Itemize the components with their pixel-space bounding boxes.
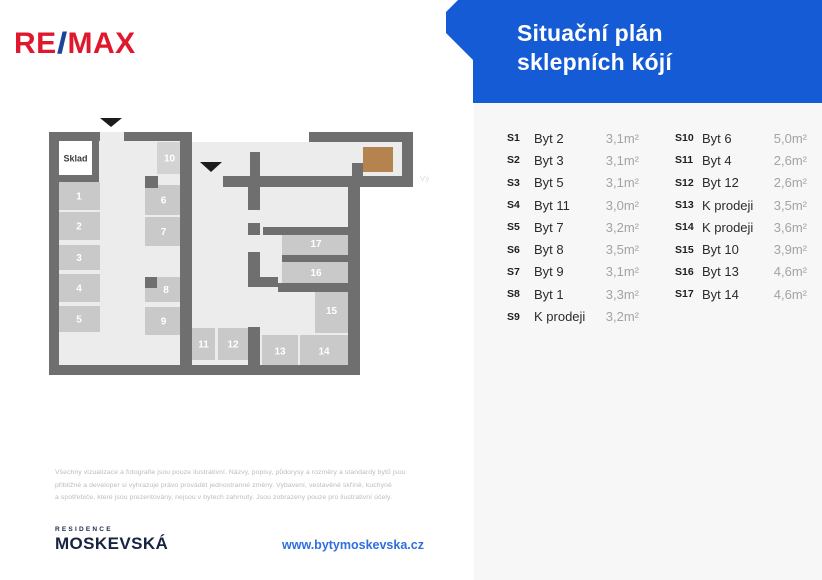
wall-center-vertical	[180, 132, 192, 375]
unit-assignment: Byt 7	[534, 220, 564, 235]
wall-above-cell17	[263, 227, 350, 235]
disclaimer-line1: Všechny vizualizace a fotografie jsou po…	[55, 467, 406, 480]
cell-label-11: 11	[198, 340, 209, 351]
cell-label-3: 3	[76, 253, 82, 264]
unit-assignment: Byt 2	[534, 131, 564, 146]
unit-area: 5,0m²	[774, 131, 807, 146]
unit-code: S3	[507, 177, 534, 189]
cell-label-9: 9	[161, 317, 167, 328]
column-pillar-1	[145, 176, 158, 188]
table-row: S11Byt 42,6m²	[675, 149, 807, 171]
unit-code: S7	[507, 266, 534, 278]
unit-assignment: K prodeji	[702, 198, 753, 213]
disclaimer-line2: přibližné a developer si vyhrazuje právo…	[55, 480, 406, 493]
unit-area: 2,6m²	[774, 153, 807, 168]
disclaimer-line3: a spotřebiče, které jsou prezentovány, n…	[55, 492, 406, 505]
table-row: S3Byt 53,1m²	[507, 172, 639, 194]
units-table-col2: S10Byt 65,0m² S11Byt 42,6m² S12Byt 122,6…	[675, 127, 807, 305]
cell-label-14: 14	[318, 347, 330, 358]
disclaimer: Všechny vizualizace a fotografie jsou po…	[55, 467, 406, 505]
unit-assignment: Byt 1	[534, 287, 564, 302]
unit-area: 3,9m²	[774, 242, 807, 257]
wall-between-12-13	[248, 327, 260, 367]
unit-assignment: Byt 5	[534, 175, 564, 190]
unit-code: S11	[675, 154, 702, 166]
unit-code: S10	[675, 132, 702, 144]
entrance-arrow-icon-1	[100, 118, 122, 127]
cell-label-4: 4	[76, 284, 82, 295]
wall-outer-bottom	[49, 365, 360, 375]
unit-area: 3,1m²	[606, 175, 639, 190]
remax-logo-re: RE	[14, 27, 57, 60]
unit-area: 3,5m²	[774, 198, 807, 213]
unit-code: S15	[675, 244, 702, 256]
table-row: S9K prodeji3,2m²	[507, 305, 639, 327]
table-row: S8Byt 13,3m²	[507, 283, 639, 305]
remax-logo-slash-icon: /	[57, 27, 68, 61]
cell-label-17: 17	[310, 239, 322, 250]
table-row: S5Byt 73,2m²	[507, 216, 639, 238]
unit-assignment: Byt 8	[534, 242, 564, 257]
table-row: S10Byt 65,0m²	[675, 127, 807, 149]
cell-label-10: 10	[164, 154, 176, 165]
sklad-label: Sklad	[63, 154, 87, 164]
floor-plan-svg: Sklad Výtah 1 2 3 4 5 6 7 8 9 10 11 12 1…	[30, 100, 430, 400]
unit-area: 2,6m²	[774, 175, 807, 190]
unit-assignment: Byt 11	[534, 198, 570, 213]
unit-code: S13	[675, 199, 702, 211]
wall-corridor-divider	[223, 176, 412, 187]
wall-sklad-right	[92, 141, 99, 179]
unit-assignment: Byt 12	[702, 175, 739, 190]
unit-area: 3,1m²	[606, 131, 639, 146]
cell-label-2: 2	[76, 222, 82, 233]
table-row: S17Byt 144,6m²	[675, 283, 807, 305]
cell-label-13: 13	[274, 347, 286, 358]
page-title: Situační plán sklepních kójí	[517, 19, 672, 77]
column-pillar-2	[145, 277, 157, 288]
table-row: S4Byt 113,0m²	[507, 194, 639, 216]
remax-logo: RE/MAX	[14, 27, 136, 61]
unit-area: 3,1m²	[606, 264, 639, 279]
flyer-page: Situační plán sklepních kójí RE/MAX	[0, 0, 822, 580]
table-row: S6Byt 83,5m²	[507, 238, 639, 260]
cell-label-1: 1	[76, 192, 82, 203]
unit-code: S4	[507, 199, 534, 211]
wall-between-16-17	[282, 255, 350, 262]
unit-code: S17	[675, 288, 702, 300]
unit-code: S8	[507, 288, 534, 300]
residence-logo: RESIDENCE MOSKEVSKÁ	[55, 526, 168, 554]
cell-label-6: 6	[161, 196, 167, 207]
wall-room-left-2	[248, 223, 260, 235]
unit-assignment: Byt 3	[534, 153, 564, 168]
page-title-line1: Situační plán	[517, 19, 672, 48]
unit-code: S2	[507, 154, 534, 166]
table-row: S14K prodeji3,6m²	[675, 216, 807, 238]
elevator-label: Výtah	[420, 174, 430, 183]
remax-logo-max: MAX	[68, 27, 136, 60]
unit-code: S12	[675, 177, 702, 189]
wall-outer-right	[348, 187, 360, 375]
wall-elevator-left	[352, 163, 363, 187]
unit-area: 4,6m²	[774, 264, 807, 279]
unit-area: 3,2m²	[606, 220, 639, 235]
wall-outer-left	[49, 132, 59, 375]
table-row: S16Byt 134,6m²	[675, 261, 807, 283]
website-link[interactable]: www.bytymoskevska.cz	[282, 538, 424, 552]
unit-assignment: Byt 10	[702, 242, 739, 257]
wall-under-cell16	[278, 283, 360, 292]
unit-assignment: Byt 14	[702, 287, 739, 302]
unit-area: 4,6m²	[774, 287, 807, 302]
wall-sklad-bottom	[58, 175, 99, 182]
unit-area: 3,5m²	[606, 242, 639, 257]
cell-label-8: 8	[163, 285, 169, 296]
cell-label-5: 5	[76, 315, 82, 326]
residence-logo-top: RESIDENCE	[55, 526, 168, 533]
unit-area: 3,2m²	[606, 309, 639, 324]
unit-assignment: Byt 6	[702, 131, 732, 146]
unit-code: S1	[507, 132, 534, 144]
wall-room-left-3	[248, 252, 260, 287]
cell-label-12: 12	[227, 340, 239, 351]
table-row: S12Byt 122,6m²	[675, 172, 807, 194]
cell-label-7: 7	[161, 227, 167, 238]
unit-assignment: K prodeji	[534, 309, 585, 324]
unit-code: S16	[675, 266, 702, 278]
units-table-col1: S1Byt 23,1m² S2Byt 33,1m² S3Byt 53,1m² S…	[507, 127, 639, 328]
unit-code: S14	[675, 221, 702, 233]
residence-logo-name: MOSKEVSKÁ	[55, 534, 168, 554]
unit-code: S5	[507, 221, 534, 233]
unit-code: S9	[507, 311, 534, 323]
wall-room-left-1	[248, 187, 260, 210]
unit-assignment: Byt 13	[702, 264, 739, 279]
cell-label-16: 16	[310, 268, 322, 279]
wall-corridor-stub	[250, 152, 260, 176]
unit-assignment: Byt 4	[702, 153, 732, 168]
unit-assignment: Byt 9	[534, 264, 564, 279]
cell-label-15: 15	[326, 306, 338, 317]
unit-area: 3,6m²	[774, 220, 807, 235]
table-row: S7Byt 93,1m²	[507, 261, 639, 283]
table-row: S1Byt 23,1m²	[507, 127, 639, 149]
unit-assignment: K prodeji	[702, 220, 753, 235]
wall-top-left	[49, 132, 100, 141]
unit-area: 3,0m²	[606, 198, 639, 213]
table-row: S2Byt 33,1m²	[507, 149, 639, 171]
page-title-line2: sklepních kójí	[517, 48, 672, 77]
wall-room-left-foot	[260, 277, 278, 287]
wall-top-right	[309, 132, 413, 142]
floor-plan: Sklad Výtah 1 2 3 4 5 6 7 8 9 10 11 12 1…	[30, 100, 430, 405]
elevator	[363, 147, 393, 172]
table-row: S15Byt 103,9m²	[675, 238, 807, 260]
table-row: S13K prodeji3,5m²	[675, 194, 807, 216]
unit-area: 3,3m²	[606, 287, 639, 302]
unit-area: 3,1m²	[606, 153, 639, 168]
unit-code: S6	[507, 244, 534, 256]
